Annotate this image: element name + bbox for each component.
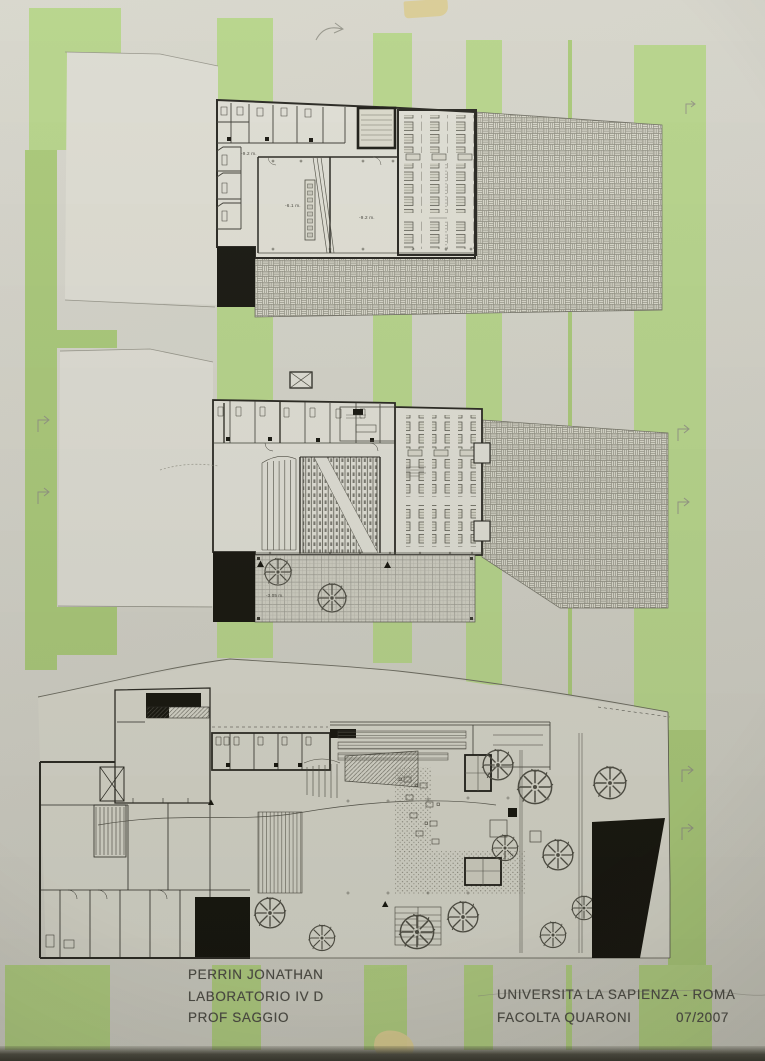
pencil-sheet-edge [58,52,218,607]
title-prof: PROF SAGGIO [188,1007,324,1029]
pencil-corner-arrow [38,488,49,504]
pencil-corner-arrow [682,824,693,840]
board-bottom-edge [0,1046,765,1061]
title-faculty: FACOLTA QUARONI [497,1007,632,1029]
pencil-annotations [0,0,765,1061]
title-block-left: PERRIN JONATHAN LABORATORIO IV D PROF SA… [188,964,324,1029]
title-block-right: UNIVERSITA LA SAPIENZA - ROMA FACOLTA QU… [497,984,729,1028]
pencil-corner-arrow [682,766,693,782]
presentation-board: -9.2 m. -6.1 m. -9.2 m. [0,0,765,1061]
pencil-corner-arrow [686,101,695,114]
pencil-corner-arrow [678,425,689,441]
title-date: 07/2007 [676,1007,729,1029]
pencil-dashed-arc [160,464,218,470]
title-lab: LABORATORIO IV D [188,986,324,1008]
pencil-corner-arrow [38,416,49,432]
title-university: UNIVERSITA LA SAPIENZA - ROMA [497,984,729,1006]
title-author: PERRIN JONATHAN [188,964,324,986]
pencil-scribble-arrow [316,23,343,40]
pencil-corner-arrow [678,498,689,514]
